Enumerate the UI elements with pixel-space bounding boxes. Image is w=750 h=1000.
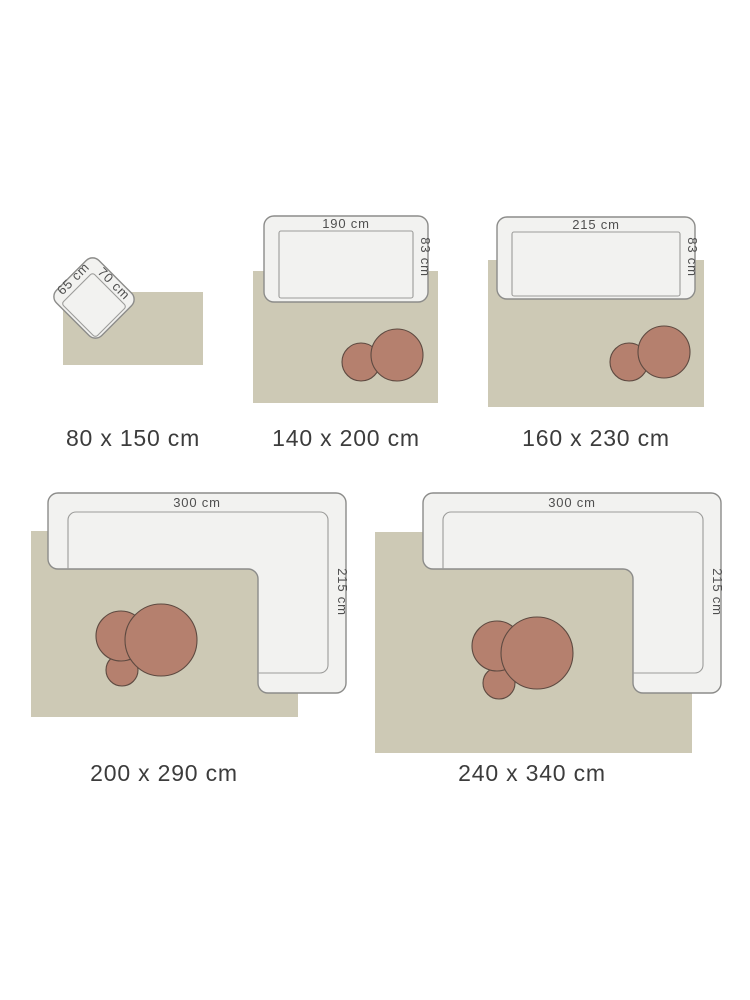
panel-240x340: 300 cm 215 cm 240 x 340 cm	[375, 493, 725, 786]
sofa-depth-label: 215 cm	[335, 568, 350, 615]
sofa-depth-label: 215 cm	[710, 568, 725, 615]
sofa-shape: 190 cm 83 cm	[264, 216, 433, 302]
size-caption: 80 x 150 cm	[66, 425, 200, 451]
sofa-width-label: 300 cm	[548, 495, 595, 510]
sofa-width-label: 190 cm	[322, 216, 369, 231]
size-caption: 140 x 200 cm	[272, 425, 420, 451]
sofa-depth-label: 83 cm	[685, 237, 700, 276]
panel-200x290: 300 cm 215 cm 200 x 290 cm	[31, 493, 350, 786]
size-caption: 160 x 230 cm	[522, 425, 670, 451]
size-caption: 200 x 290 cm	[90, 760, 238, 786]
coffee-table-large	[638, 326, 690, 378]
panel-80x150: 65 cm 70 cm 80 x 150 cm	[47, 250, 203, 451]
panel-140x200: 190 cm 83 cm 140 x 200 cm	[253, 216, 438, 451]
sofa-width-label: 215 cm	[572, 217, 619, 232]
panel-160x230: 215 cm 83 cm 160 x 230 cm	[488, 217, 704, 451]
sofa-shape: 215 cm 83 cm	[497, 217, 700, 299]
sofa-width-label: 300 cm	[173, 495, 220, 510]
size-caption: 240 x 340 cm	[458, 760, 606, 786]
coffee-table-large	[501, 617, 573, 689]
sofa-depth-label: 83 cm	[418, 237, 433, 276]
coffee-table-large	[125, 604, 197, 676]
rug-size-guide: 65 cm 70 cm 80 x 150 cm 190 cm 83 cm 140…	[0, 0, 750, 1000]
coffee-table-large	[371, 329, 423, 381]
